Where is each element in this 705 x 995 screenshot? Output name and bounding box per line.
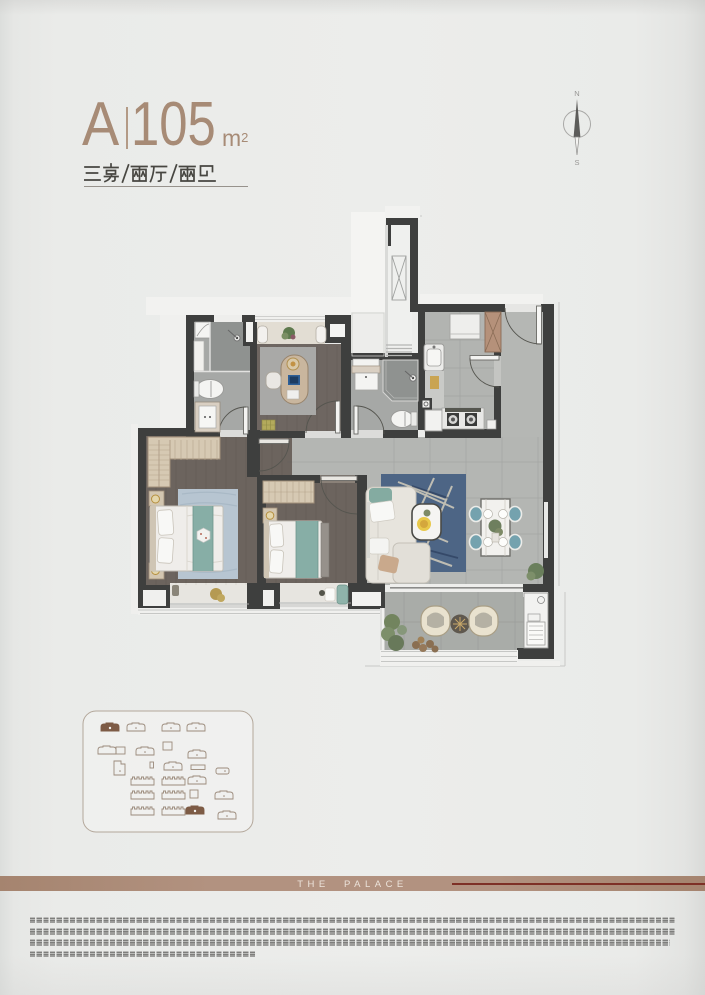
svg-text:N: N <box>574 89 579 98</box>
svg-text:S: S <box>574 158 579 167</box>
